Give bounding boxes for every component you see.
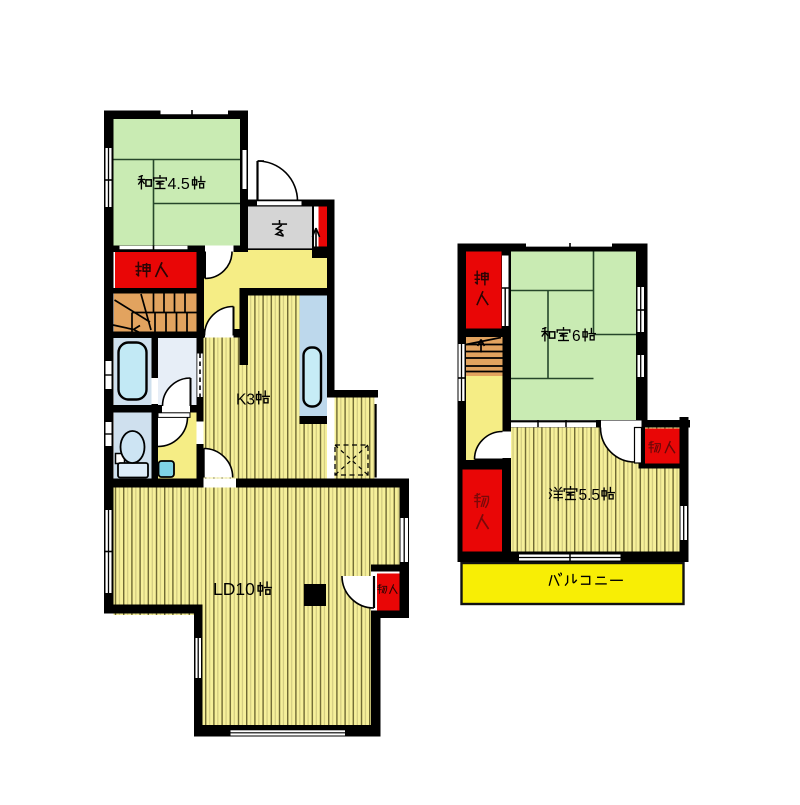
svg-text:K3: K3 [236,392,255,409]
svg-text:5.5: 5.5 [579,487,601,504]
svg-text:6: 6 [572,328,581,345]
svg-text:4.5: 4.5 [168,176,190,193]
svg-text:LD10: LD10 [213,579,255,599]
